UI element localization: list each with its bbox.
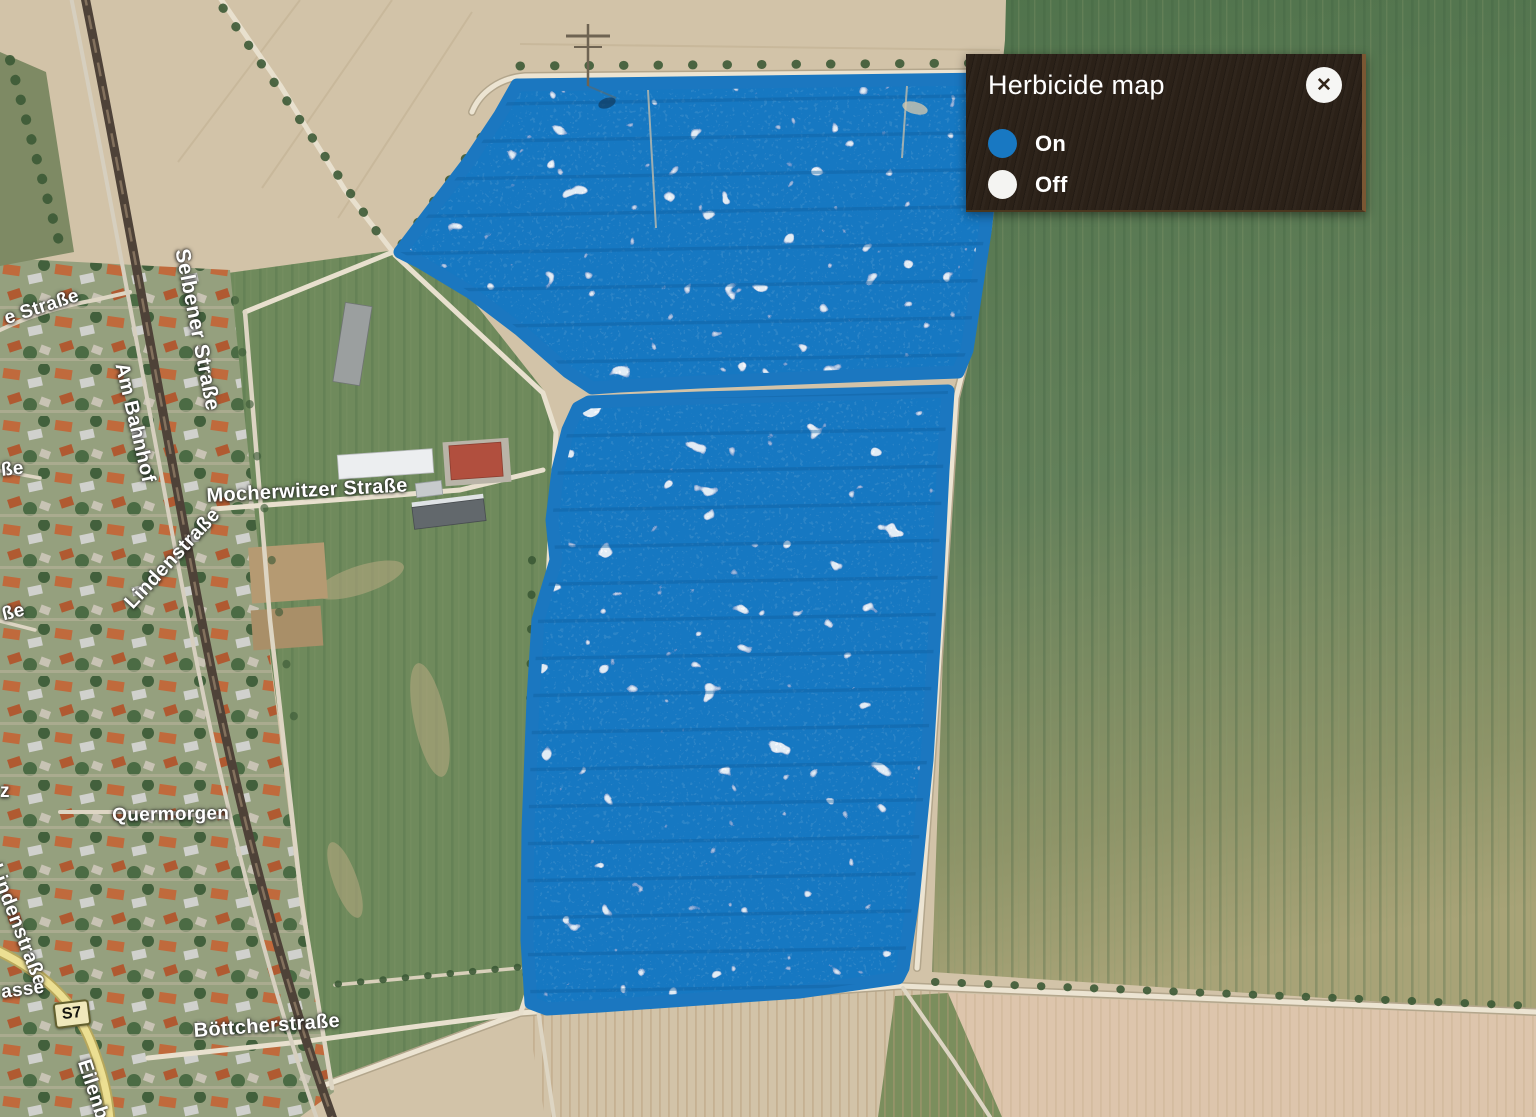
paddocks: [248, 542, 328, 650]
satellite-map[interactable]: Selbener Straße Am Bahnhof Mocherwitzer …: [0, 0, 1536, 1117]
on-color-dot: [988, 129, 1017, 158]
close-icon: ✕: [1316, 74, 1332, 97]
close-button[interactable]: ✕: [1306, 67, 1342, 103]
off-color-dot: [988, 170, 1017, 199]
legend-item-off[interactable]: Off: [988, 170, 1342, 199]
legend-item-on-label: On: [1035, 131, 1066, 157]
legend-title: Herbicide map: [988, 70, 1165, 101]
herbicide-map-legend-panel: Herbicide map ✕ On Off: [966, 54, 1366, 212]
legend-item-off-label: Off: [1035, 172, 1068, 198]
legend-rows: On Off: [988, 129, 1342, 199]
legend-item-on[interactable]: On: [988, 129, 1342, 158]
road-badge-s7: S7: [53, 999, 92, 1029]
legend-header: Herbicide map ✕: [988, 67, 1342, 103]
